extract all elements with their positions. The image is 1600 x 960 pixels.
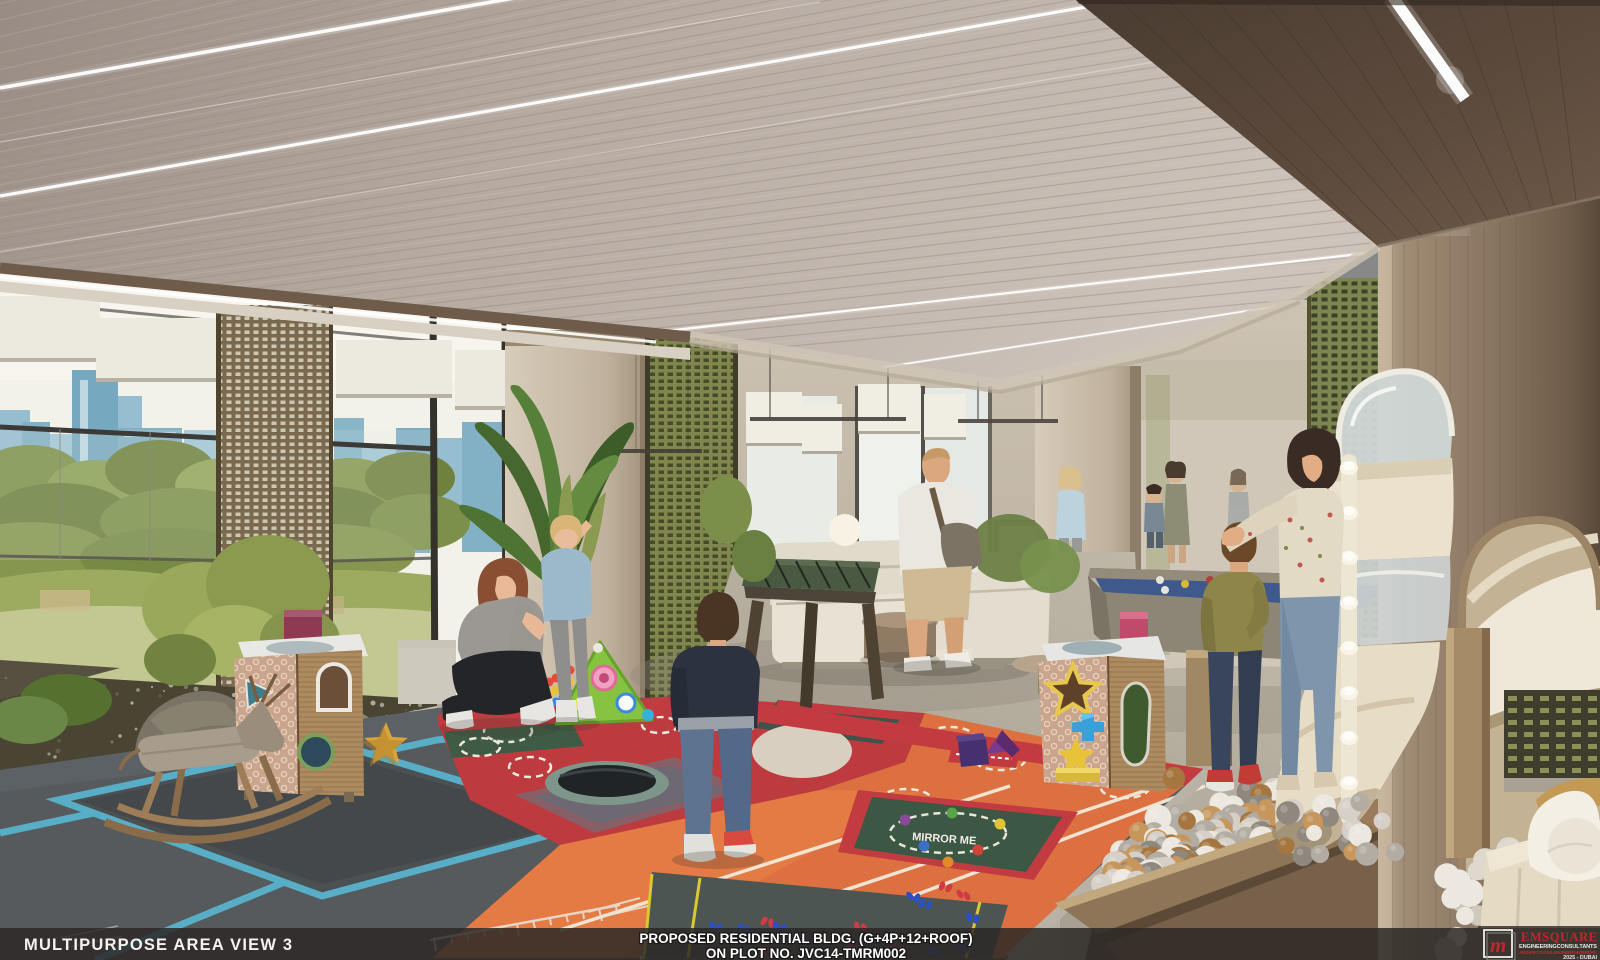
svg-text:2025 - DUBAI: 2025 - DUBAI — [1563, 955, 1597, 960]
svg-text:PROPOSED RESIDENTIAL BLDG. (G+: PROPOSED RESIDENTIAL BLDG. (G+4P+12+ROOF… — [639, 931, 972, 946]
svg-text:EMSQUARE: EMSQUARE — [1521, 930, 1597, 944]
svg-text:m: m — [1490, 933, 1506, 957]
svg-text:MULTIPURPOSE AREA VIEW 3: MULTIPURPOSE AREA VIEW 3 — [24, 936, 293, 954]
svg-text:ON PLOT NO. JVC14-TMRM002: ON PLOT NO. JVC14-TMRM002 — [706, 946, 906, 960]
